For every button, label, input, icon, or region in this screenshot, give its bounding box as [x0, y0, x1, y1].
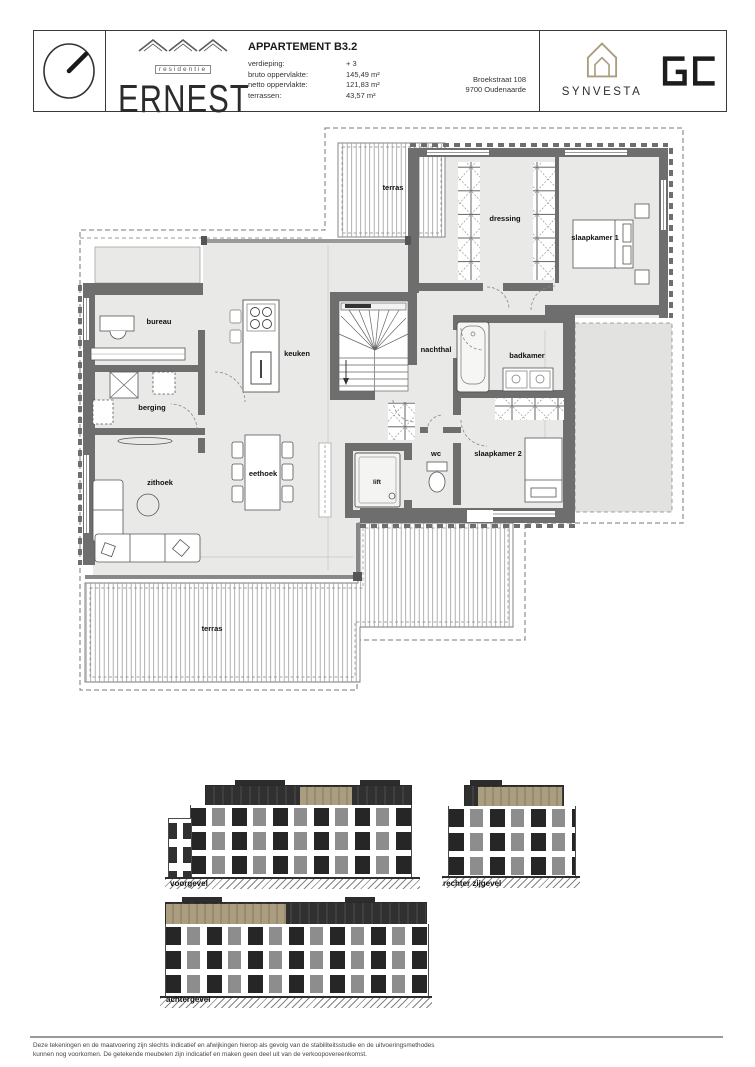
- residentie-ernest-logo: residentie ERNEST: [118, 37, 248, 107]
- elevation-label-voorgevel: voorgevel: [170, 879, 208, 888]
- gc-logo: [658, 51, 720, 96]
- address-line1: Broekstraat 108: [364, 75, 526, 85]
- apartment-title: APPARTEMENT B3.2: [248, 41, 448, 53]
- room-label-terras-top: terras: [383, 183, 404, 192]
- room-label-zithoek: zithoek: [147, 478, 174, 487]
- north-arrow-icon: [34, 31, 105, 108]
- disclaimer-line1: Deze tekeningen en de maatvoering zijn s…: [33, 1042, 633, 1051]
- gc-icon: [658, 51, 720, 91]
- room-label-berging: berging: [138, 403, 166, 412]
- elevation-label-achtergevel: achtergevel: [166, 995, 210, 1004]
- facade-body: [448, 806, 576, 877]
- facade-body: [165, 924, 429, 997]
- floor-plan: terras dressing slaapkamer 1 bureau keuk…: [75, 120, 690, 710]
- north-arrow-cell: [34, 31, 106, 111]
- partner-logos: SYNVESTA: [539, 31, 727, 111]
- header-title-block: residentie ERNEST APPARTEMENT B3.2 verdi…: [33, 30, 727, 112]
- room-label-slaapkamer-1: slaapkamer 1: [571, 233, 619, 242]
- toilet-icon: [427, 462, 447, 492]
- facade-wing: [168, 818, 192, 879]
- brand-sub-label: residentie: [155, 65, 211, 74]
- room-label-dressing: dressing: [489, 214, 521, 223]
- disclaimer-text: Deze tekeningen en de maatvoering zijn s…: [33, 1042, 633, 1059]
- synvesta-logo: SYNVESTA: [552, 41, 652, 98]
- plan-sheet: { "header": { "title": "APPARTEMENT B3.2…: [0, 0, 755, 1067]
- spec-row: verdieping: + 3: [248, 59, 448, 70]
- project-address: Broekstraat 108 9700 Oudenaarde: [364, 75, 526, 95]
- double-sink-icon: [503, 368, 553, 391]
- bathtub-icon: [457, 322, 489, 392]
- disclaimer-line2: kunnen nog voorkomen. De getekende meube…: [33, 1051, 633, 1060]
- synvesta-house-icon: [582, 41, 622, 79]
- room-label-bureau: bureau: [146, 317, 171, 326]
- address-line2: 9700 Oudenaarde: [364, 85, 526, 95]
- room-label-keuken: keuken: [284, 349, 310, 358]
- room-label-lift: lift: [373, 479, 382, 486]
- synvesta-name: SYNVESTA: [552, 86, 652, 98]
- elevation-rechter-zijgevel: [442, 772, 580, 889]
- room-label-nachthal: nachthal: [421, 345, 452, 354]
- room-label-eethoek: eethoek: [249, 469, 278, 478]
- room-label-badkamer: badkamer: [509, 351, 545, 360]
- stairs: [339, 301, 408, 391]
- room-label-wc: wc: [430, 449, 441, 458]
- facade-body: [190, 805, 412, 878]
- brand-name: ERNEST: [118, 77, 248, 122]
- elevation-voorgevel: [165, 778, 420, 890]
- elevation-label-rechter-zijgevel: rechter zijgevel: [443, 879, 501, 888]
- room-label-slaapkamer-2: slaapkamer 2: [474, 449, 522, 458]
- roofs-icon: [135, 37, 231, 53]
- room-label-terras-bottom: terras: [202, 624, 223, 633]
- footer-divider: [30, 1036, 723, 1038]
- bed-icon-slaapkamer2: [525, 438, 562, 502]
